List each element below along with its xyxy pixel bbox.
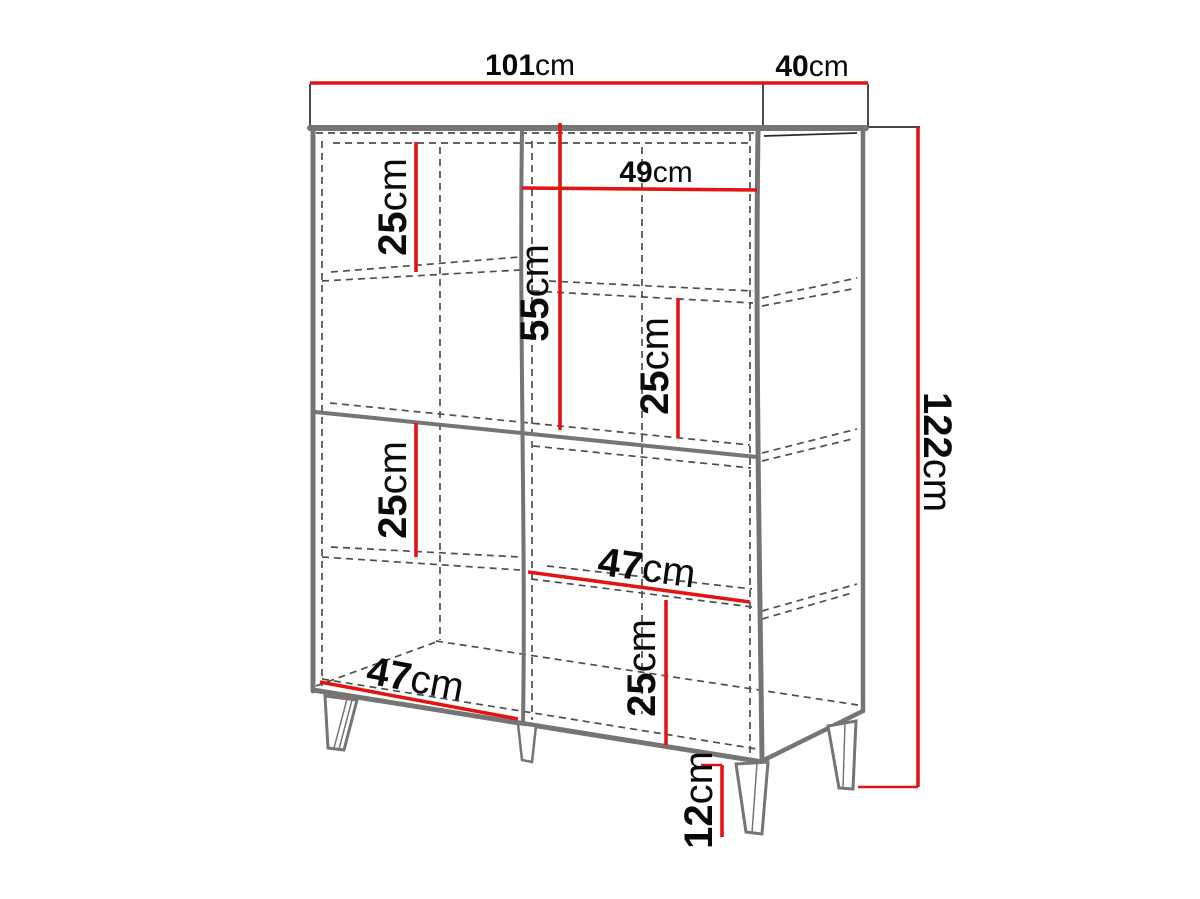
label-upper-middle-height: 55cm	[513, 244, 557, 342]
side-panel-shelf-a1	[762, 278, 857, 298]
dimension-diagram: 101cm 40cm 122cm 49cm 55cm 25cm 25cm 25c…	[0, 0, 1200, 899]
label-lower-right-width: 47cm	[595, 540, 698, 597]
shelf-a-right-back	[549, 281, 753, 291]
label-upper-right-shelf: 25cm	[633, 317, 677, 415]
legs	[325, 696, 856, 834]
label-lower-left-shelf: 25cm	[371, 441, 415, 539]
side-panel-top-inner	[764, 133, 857, 136]
center-divider	[521, 131, 524, 723]
shelf-b-left-front	[322, 557, 520, 570]
label-upper-left-shelf: 25cm	[371, 158, 415, 256]
label-leg-height: 12cm	[677, 751, 721, 849]
right-front-edge	[757, 130, 762, 761]
front-right-leg	[736, 762, 768, 834]
label-overall-width: 101cm	[485, 49, 575, 82]
mid-shelf-back	[330, 403, 750, 445]
front-left-leg	[325, 696, 357, 750]
shelf-a-left-back	[331, 257, 520, 272]
label-upper-right-width: 49cm	[619, 156, 692, 189]
shelf-b-left-back	[331, 547, 520, 557]
label-overall-height: 122cm	[915, 392, 959, 512]
side-panel-shelf-b2	[762, 593, 852, 619]
shelf-a-left-front	[322, 270, 520, 281]
back-center-leg	[518, 724, 536, 762]
side-panel-shelf-a2	[762, 289, 852, 306]
back-right-leg	[828, 721, 856, 789]
cabinet-drawing: 101cm 40cm 122cm 49cm 55cm 25cm 25cm 25c…	[0, 0, 1200, 899]
label-lower-right-shelf: 25cm	[620, 619, 664, 717]
side-panel-shelf-b1	[762, 584, 857, 611]
label-overall-depth: 40cm	[775, 50, 848, 83]
shelf-a-right-front	[533, 291, 753, 303]
